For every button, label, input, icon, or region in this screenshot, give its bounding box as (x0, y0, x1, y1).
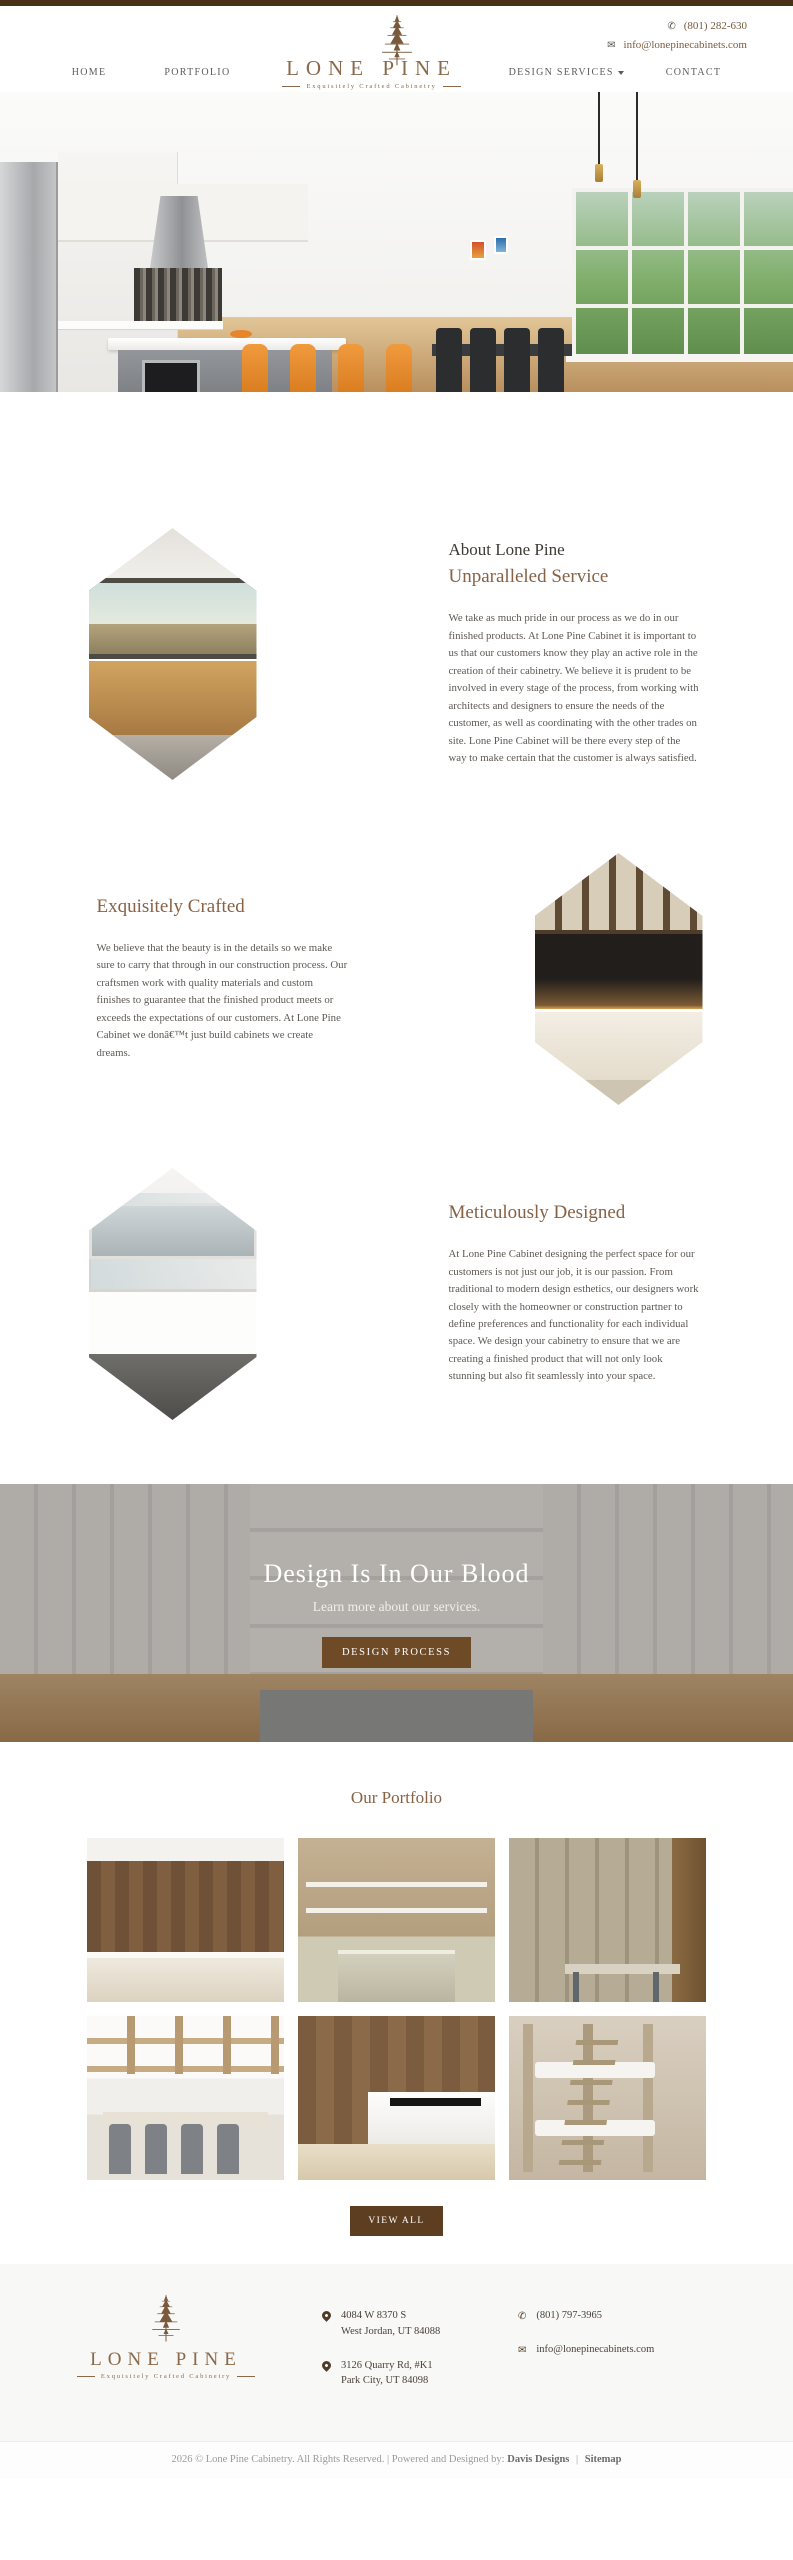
hero-built-in-oven (142, 360, 200, 392)
hero-fruit-bowl (230, 330, 252, 338)
nav-home[interactable]: HOME (72, 67, 107, 78)
hero-orange-stool (286, 344, 320, 392)
envelope-icon: ✉ (518, 2343, 526, 2358)
about-row-designed: Meticulously Designed At Lone Pine Cabin… (47, 1144, 747, 1444)
hero-wall-art (494, 236, 508, 254)
envelope-icon: ✉ (607, 40, 615, 51)
portfolio-grid (87, 1838, 707, 2180)
nav-contact[interactable]: CONTACT (666, 67, 722, 78)
main-nav: HOME PORTFOLIO LONE PINE Exquisitely Cra… (0, 56, 793, 90)
nav-design-services[interactable]: DESIGN SERVICES (509, 67, 624, 78)
about-row-service: About Lone Pine Unparalleled Service We … (47, 504, 747, 804)
hero-wall-art (470, 240, 486, 260)
location-pin-icon (320, 2309, 333, 2322)
footer-email[interactable]: ✉ info@lonepinecabinets.com (518, 2342, 718, 2358)
footer-logo-wordmark: LONE PINE (46, 2349, 286, 2371)
header-phone-number[interactable]: (801) 282-630 (684, 20, 747, 32)
header-contact: ✆ (801) 282-630 ✉ info@lonepinecabinets.… (607, 20, 747, 58)
pendant-light (636, 92, 638, 180)
phone-icon: ✆ (667, 21, 675, 32)
pendant-light (598, 92, 600, 164)
site-footer: LONE PINE Exquisitely Crafted Cabinetry … (0, 2264, 793, 2441)
section-body: At Lone Pine Cabinet designing the perfe… (449, 1246, 701, 1386)
logo-tagline: Exquisitely Crafted Cabinetry (282, 83, 460, 90)
header-email-address[interactable]: info@lonepinecabinets.com (624, 39, 747, 51)
portfolio-item-coffered-ceiling-kitchen[interactable] (87, 2016, 284, 2180)
bathroom-vanity-hexagon-image (89, 1168, 257, 1420)
phone-icon: ✆ (518, 2309, 526, 2324)
section-title: Meticulously Designed (449, 1202, 701, 1224)
hero-orange-stool (334, 344, 368, 392)
design-banner: Design Is In Our Blood Learn more about … (0, 1484, 793, 1742)
hero-dining-chair (470, 328, 496, 392)
footer-address-2: 3126 Quarry Rd, #K1Park City, UT 84098 (322, 2358, 518, 2390)
hero-window-mullions (572, 188, 793, 358)
portfolio-section: Our Portfolio VIEW ALL (0, 1742, 793, 2236)
about-row-crafted: Exquisitely Crafted We believe that the … (47, 844, 747, 1114)
about-text-block: About Lone Pine Unparalleled Service We … (449, 540, 701, 767)
kitchen-window-hexagon-image (89, 528, 257, 780)
banner-subtitle: Learn more about our services. (313, 1599, 481, 1615)
portfolio-item-modern-walnut-kitchen[interactable] (87, 1838, 284, 2002)
design-process-button[interactable]: DESIGN PROCESS (322, 1637, 471, 1668)
banner-title: Design Is In Our Blood (263, 1559, 529, 1589)
header-phone[interactable]: ✆ (801) 282-630 (607, 20, 747, 32)
hero-dining-chair (436, 328, 462, 392)
section-body: We take as much pride in our process as … (449, 610, 701, 767)
page: ✆ (801) 282-630 ✉ info@lonepinecabinets.… (0, 0, 793, 2479)
footer-contact: ✆ (801) 797-3965 ✉ info@lonepinecabinets… (518, 2308, 718, 2407)
about-text-block: Exquisitely Crafted We believe that the … (97, 896, 349, 1062)
view-all-button[interactable]: VIEW ALL (350, 2206, 442, 2236)
footer-address-1: 4084 W 8370 SWest Jordan, UT 84088 (322, 2308, 518, 2340)
portfolio-item-dark-wood-kitchen[interactable] (298, 2016, 495, 2180)
header-email[interactable]: ✉ info@lonepinecabinets.com (607, 39, 747, 51)
portfolio-item-mudroom-lockers[interactable] (509, 1838, 706, 2002)
hero-window-sill (566, 354, 793, 362)
logo-wordmark[interactable]: LONE PINE (282, 56, 460, 81)
hero-counter (58, 321, 223, 329)
footer-logo-tagline: Exquisitely Crafted Cabinetry (46, 2373, 286, 2380)
portfolio-title: Our Portfolio (0, 1788, 793, 1808)
copyright-bar: 2026 © Lone Pine Cabinetry. All Rights R… (0, 2441, 793, 2479)
section-title: Exquisitely Crafted (97, 896, 349, 918)
about-section: About Lone Pine Unparalleled Service We … (47, 504, 747, 1444)
section-body: We believe that the beauty is in the det… (97, 940, 349, 1062)
section-title: Unparalleled Service (449, 566, 701, 588)
footer-addresses: 4084 W 8370 SWest Jordan, UT 84088 3126 … (322, 2308, 518, 2407)
chevron-down-icon (618, 71, 624, 75)
hero-fridge (0, 162, 58, 392)
copyright-text: 2026 © Lone Pine Cabinetry. All Rights R… (172, 2454, 505, 2465)
about-text-block: Meticulously Designed At Lone Pine Cabin… (449, 1202, 701, 1386)
separator: | (576, 2454, 578, 2465)
dark-backsplash-kitchen-hexagon-image (535, 853, 703, 1105)
about-eyebrow: About Lone Pine (449, 540, 701, 560)
hero-kitchen-image (0, 92, 793, 392)
hero-orange-stool (382, 344, 416, 392)
footer-pine-tree-icon (146, 2294, 186, 2344)
footer-phone[interactable]: ✆ (801) 797-3965 (518, 2308, 718, 2324)
sitemap-link[interactable]: Sitemap (585, 2454, 622, 2465)
site-header: ✆ (801) 282-630 ✉ info@lonepinecabinets.… (0, 6, 793, 92)
hero-dining-chair (538, 328, 564, 392)
portfolio-item-rustic-open-shelving-kitchen[interactable] (298, 1838, 495, 2002)
nav-portfolio[interactable]: PORTFOLIO (164, 67, 230, 78)
hero-orange-stool (238, 344, 272, 392)
hero-tile-backsplash (134, 268, 222, 322)
davis-designs-link[interactable]: Davis Designs (507, 2454, 569, 2465)
portfolio-item-bunk-beds[interactable] (509, 2016, 706, 2180)
logo[interactable]: LONE PINE Exquisitely Crafted Cabinetry (282, 56, 460, 90)
location-pin-icon (320, 2359, 333, 2372)
hero-dining-chair (504, 328, 530, 392)
footer-logo: LONE PINE Exquisitely Crafted Cabinetry (46, 2294, 286, 2380)
